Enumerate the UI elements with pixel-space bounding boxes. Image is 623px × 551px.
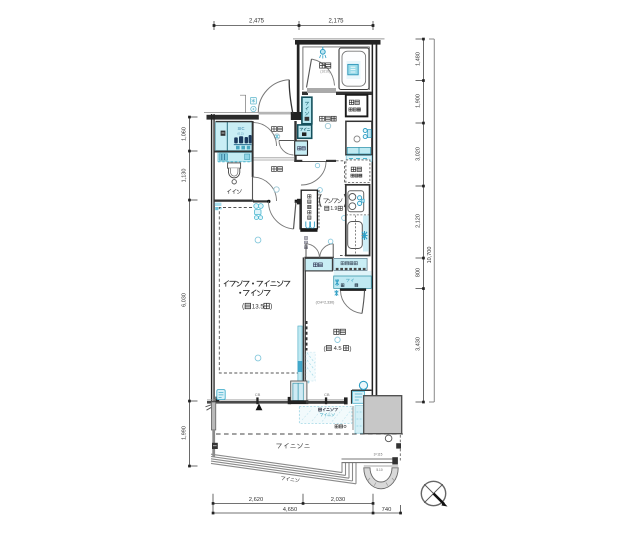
svg-text:CB: CB <box>255 392 261 397</box>
svg-text:1,900: 1,900 <box>416 94 422 108</box>
svg-text:5.10: 5.10 <box>376 468 382 472</box>
svg-text:1.9: 1.9 <box>330 206 337 212</box>
svg-text:CB: CB <box>324 392 330 397</box>
svg-text:3,430: 3,430 <box>416 337 422 351</box>
svg-text:4,650: 4,650 <box>283 507 298 513</box>
svg-text:800: 800 <box>416 268 422 277</box>
svg-text:13.5: 13.5 <box>252 303 265 310</box>
svg-text:(1616): (1616) <box>320 70 330 74</box>
svg-text:10,700: 10,700 <box>427 247 433 264</box>
svg-text:1,990: 1,990 <box>182 426 188 440</box>
svg-text:(0.2): (0.2) <box>237 132 243 136</box>
svg-text:6,030: 6,030 <box>182 293 188 307</box>
svg-text:2,120: 2,120 <box>416 214 422 228</box>
svg-text:): ) <box>349 345 351 352</box>
svg-text:1,480: 1,480 <box>416 52 422 66</box>
svg-text:2,030: 2,030 <box>331 497 346 503</box>
svg-text:2,475: 2,475 <box>249 19 265 25</box>
svg-text:740: 740 <box>382 507 392 513</box>
svg-text:4.5: 4.5 <box>334 346 342 352</box>
svg-text:3,020: 3,020 <box>416 147 422 161</box>
svg-text:): ) <box>270 304 272 311</box>
svg-text:1,130: 1,130 <box>182 169 188 183</box>
svg-text:2,175: 2,175 <box>328 19 344 25</box>
svg-text:1,060: 1,060 <box>182 127 188 141</box>
svg-text:(CH=2,330): (CH=2,330) <box>316 300 335 304</box>
svg-text:2,620: 2,620 <box>249 497 264 503</box>
svg-text:3=115: 3=115 <box>374 452 383 456</box>
svg-text:SIC: SIC <box>238 126 245 131</box>
